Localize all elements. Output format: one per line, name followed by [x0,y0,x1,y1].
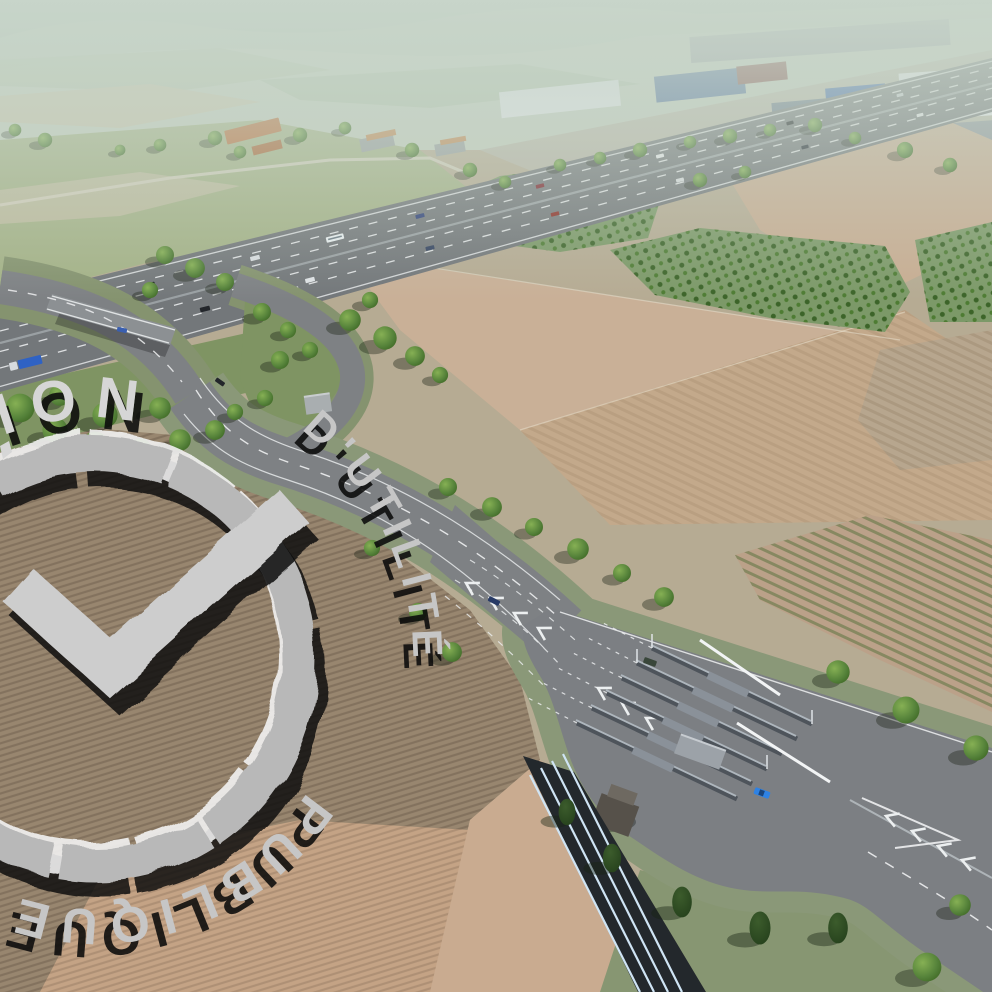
scene-render: ION D'UTILITÉ PUBLIQUE ION D'UTILITÉ PUB… [0,0,992,992]
atmospheric-haze [0,0,992,300]
aerial-render-viewport: ION D'UTILITÉ PUBLIQUE ION D'UTILITÉ PUB… [0,0,992,992]
